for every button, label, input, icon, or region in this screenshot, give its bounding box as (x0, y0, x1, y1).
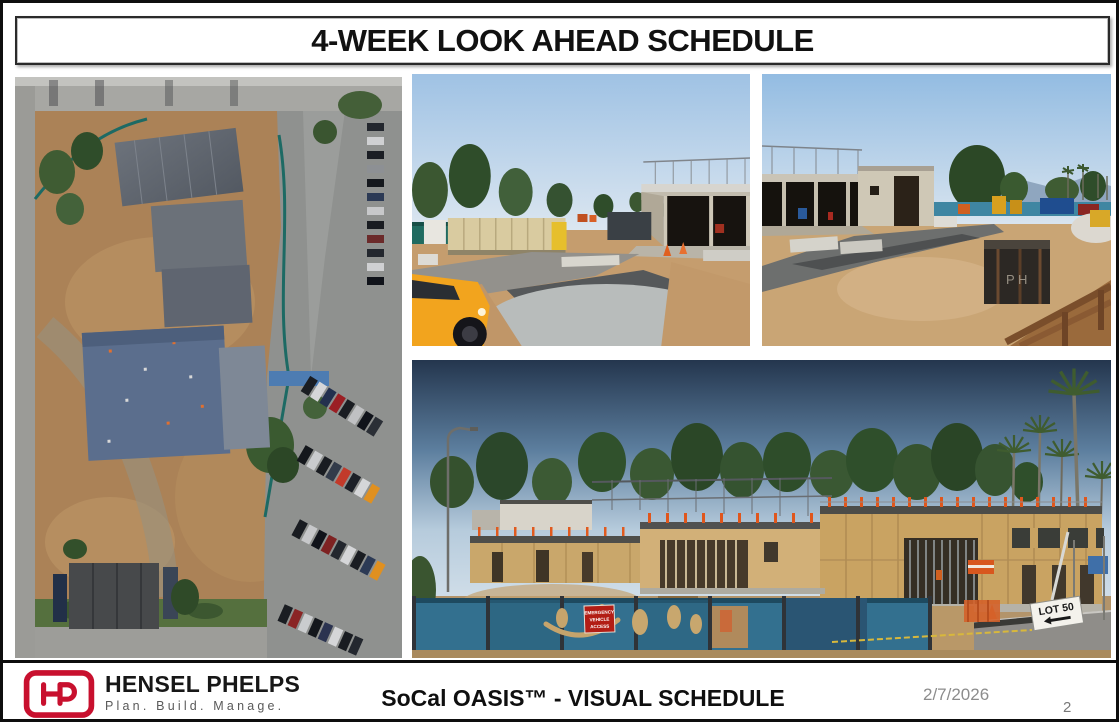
title-banner: 4-WEEK LOOK AHEAD SCHEDULE (15, 16, 1110, 65)
svg-text:EMERGENCY: EMERGENCY (584, 609, 614, 615)
aerial-photo-graphic (15, 77, 402, 658)
road-photo-graphic (412, 74, 750, 346)
svg-text:P H: P H (1006, 272, 1027, 287)
company-block: HENSEL PHELPS Plan. Build. Manage. (105, 673, 300, 713)
company-tagline: Plan. Build. Manage. (105, 700, 300, 713)
svg-text:ACCESS: ACCESS (590, 624, 609, 630)
building-site-photo: P H (762, 74, 1111, 346)
framing-site-photo: EMERGENCY VEHICLE ACCESS LOT 50 (412, 360, 1111, 658)
svg-text:VEHICLE: VEHICLE (589, 617, 609, 623)
company-name: HENSEL PHELPS (105, 673, 300, 696)
emergency-access-sign: EMERGENCY VEHICLE ACCESS (584, 605, 615, 633)
dumpster: P H (984, 240, 1050, 304)
hp-logo-icon (23, 669, 95, 719)
slide: 4-WEEK LOOK AHEAD SCHEDULE (0, 0, 1119, 722)
worker-figure (720, 610, 732, 632)
yellow-truck (412, 274, 490, 346)
slide-date: 2/7/2026 (923, 685, 989, 705)
footer-divider (3, 660, 1116, 663)
page-number: 2 (1063, 699, 1071, 716)
road-site-photo (412, 74, 750, 346)
building-photo-graphic: P H (762, 74, 1111, 346)
slide-title: 4-WEEK LOOK AHEAD SCHEDULE (311, 23, 814, 59)
framing-photo-graphic: EMERGENCY VEHICLE ACCESS LOT 50 (412, 360, 1111, 658)
hensel-phelps-logo (23, 669, 95, 719)
aerial-site-photo (15, 77, 402, 658)
footer-subtitle: SoCal OASIS™ - VISUAL SCHEDULE (333, 685, 833, 712)
